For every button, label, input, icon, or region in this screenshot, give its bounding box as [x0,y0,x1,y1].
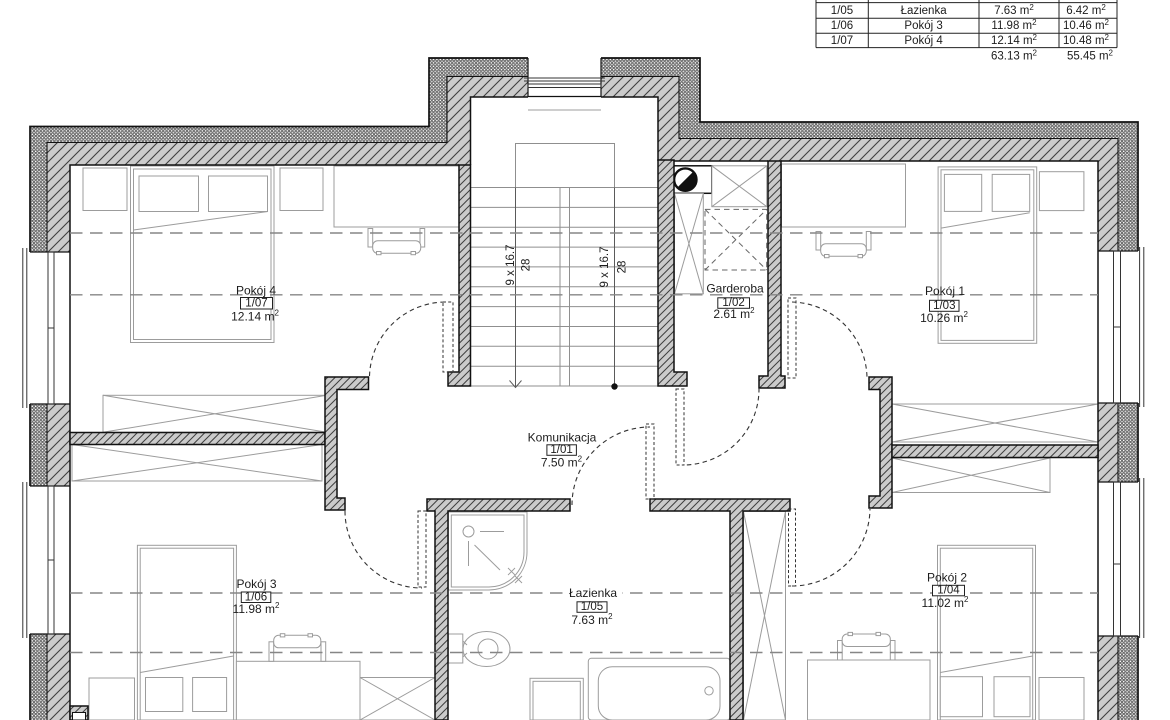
svg-text:Pokój 2: Pokój 2 [927,571,967,585]
svg-text:28: 28 [521,259,533,272]
svg-text:Pokój 1: Pokój 1 [925,284,965,298]
svg-text:11.98 m2: 11.98 m2 [991,18,1037,33]
svg-text:Pokój 4: Pokój 4 [904,35,943,47]
svg-text:11.02 m2: 11.02 m2 [922,595,969,611]
svg-text:11.98 m2: 11.98 m2 [233,600,280,616]
svg-text:55.45 m2: 55.45 m2 [1067,48,1114,63]
svg-text:2.61 m2: 2.61 m2 [713,305,755,321]
svg-text:9 x 16.7: 9 x 16.7 [599,247,611,288]
svg-text:1/04: 1/04 [937,585,960,597]
svg-text:Komunikacja: Komunikacja [528,431,597,445]
svg-text:1/05: 1/05 [831,5,853,17]
svg-text:Pokój 3: Pokój 3 [904,20,942,32]
svg-text:1/01: 1/01 [550,444,572,456]
svg-text:28: 28 [617,261,629,274]
svg-text:7.63 m2: 7.63 m2 [994,2,1034,16]
svg-text:63.13 m2: 63.13 m2 [991,48,1038,63]
svg-text:Garderoba: Garderoba [706,282,764,296]
svg-text:7.63 m2: 7.63 m2 [571,611,613,627]
svg-text:6.42 m2: 6.42 m2 [1066,2,1106,16]
svg-text:1/07: 1/07 [245,298,267,310]
svg-text:Pokój 3: Pokój 3 [236,577,276,591]
svg-text:10.46 m2: 10.46 m2 [1063,18,1110,33]
svg-text:7.50 m2: 7.50 m2 [541,454,583,470]
svg-text:10.48 m2: 10.48 m2 [1063,32,1110,47]
svg-text:Pokój 4: Pokój 4 [236,284,276,298]
svg-text:1/06: 1/06 [831,20,853,32]
svg-text:1/05: 1/05 [581,601,603,613]
svg-text:12.14 m2: 12.14 m2 [231,308,279,324]
svg-text:1/07: 1/07 [831,35,853,47]
svg-text:9 x 16.7: 9 x 16.7 [505,245,517,286]
svg-text:Łazienka: Łazienka [901,5,948,17]
svg-text:Łazienka: Łazienka [569,586,617,600]
svg-text:12.14 m2: 12.14 m2 [991,32,1038,47]
svg-text:10.26 m2: 10.26 m2 [920,310,968,326]
